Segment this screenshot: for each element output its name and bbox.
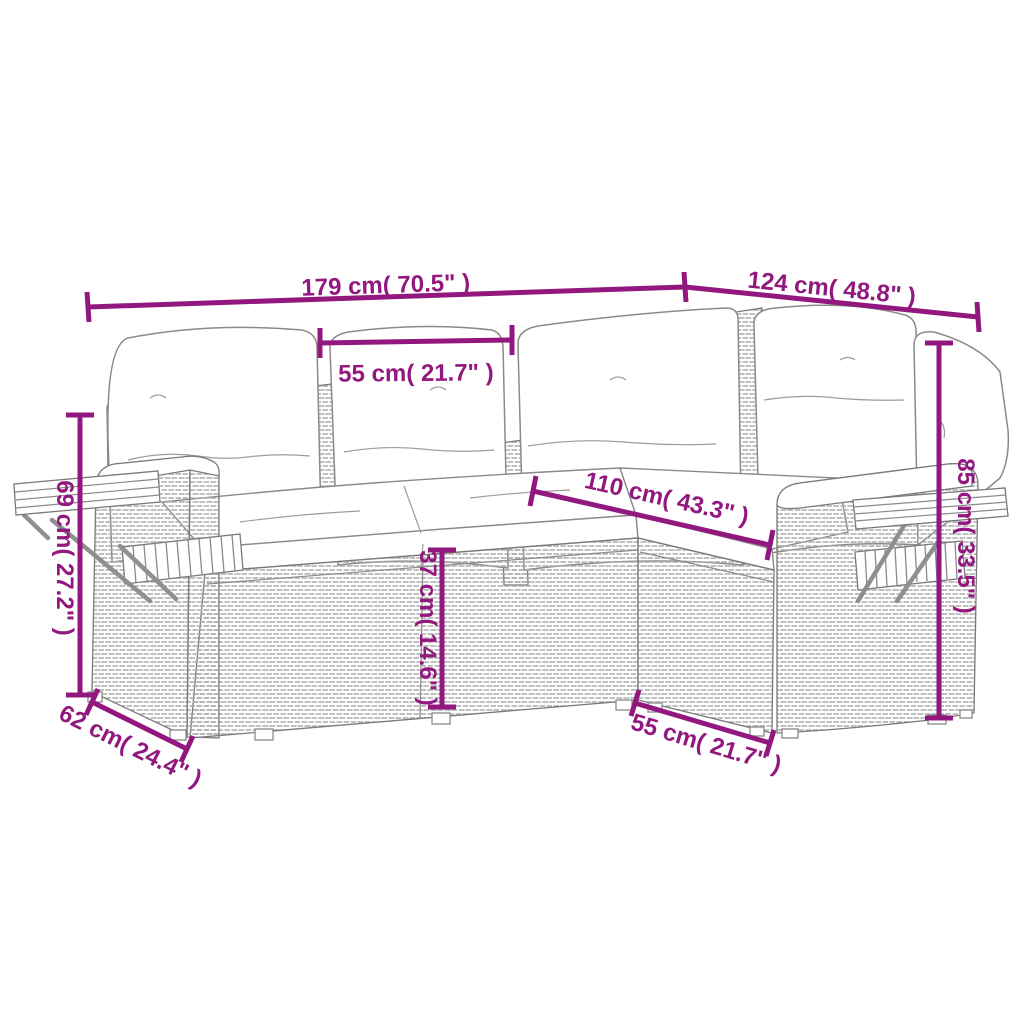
dimension-label-overall-length: 179 cm( 70.5" ): [301, 269, 471, 302]
dimension-armrest-height: 69 cm( 27.2" ): [51, 415, 94, 695]
dimension-label-armrest-height: 69 cm( 27.2" ): [51, 480, 78, 635]
dimension-overall-length: 179 cm( 70.5" ): [87, 269, 686, 322]
diagram-canvas: 179 cm( 70.5" ) 124 cm( 48.8" ) 55 cm( 2…: [0, 0, 1024, 1024]
sofa-line-art: [14, 305, 1008, 740]
dimension-label-back-height: 85 cm( 33.5" ): [952, 458, 979, 613]
sofa-dimension-diagram: 179 cm( 70.5" ) 124 cm( 48.8" ) 55 cm( 2…: [0, 0, 1024, 1024]
dimension-label-back-cushion-width: 55 cm( 21.7" ): [338, 359, 494, 387]
dimension-label-seat-height: 37 cm( 14.6" ): [414, 550, 441, 705]
rattan-base: [190, 538, 774, 738]
left-armrest-front-face: [187, 468, 219, 738]
